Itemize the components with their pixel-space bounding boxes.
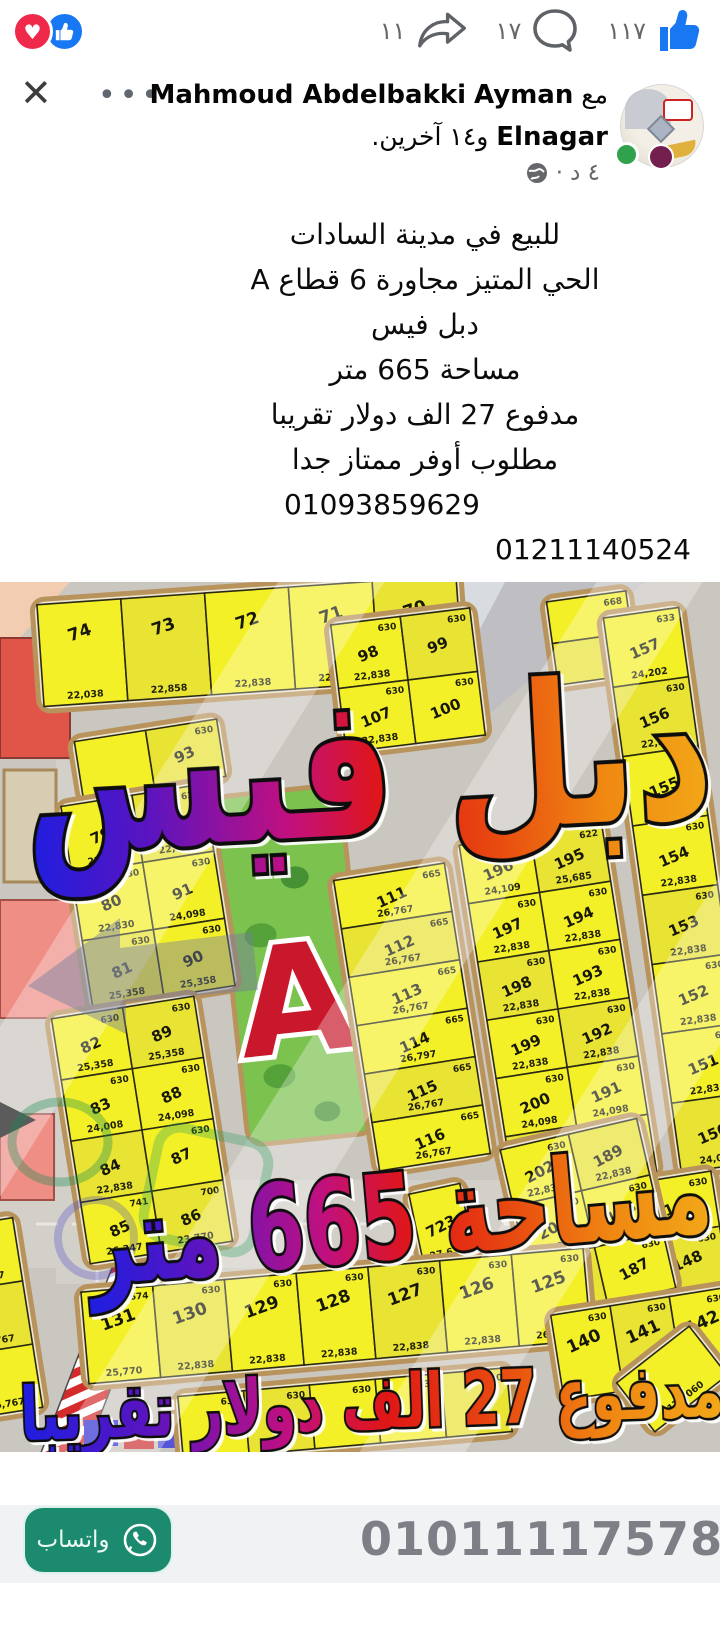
share-button[interactable]: ١١ [380, 9, 468, 53]
like-count: ١١٧ [607, 17, 646, 45]
love-reaction-icon: ♥ [12, 11, 53, 52]
author-primary-link[interactable]: Mahmoud Abdelbakki [149, 80, 466, 110]
post-line: دبل فيس [210, 302, 640, 347]
avatar-badge [648, 144, 674, 170]
whatsapp-button[interactable]: واتساب [25, 1508, 171, 1572]
globe-privacy-icon [525, 161, 549, 185]
contact-phone-number[interactable]: 01011117578 [360, 1512, 680, 1566]
comment-icon [531, 8, 579, 54]
comment-count: ١٧ [496, 17, 522, 45]
like-button[interactable]: ١١٧ [607, 7, 706, 55]
with-prefix: مع [581, 80, 608, 109]
whatsapp-icon [120, 1520, 160, 1560]
post-byline: مع Mahmoud Abdelbakki Ayman Elnagar و١٤ … [148, 74, 608, 158]
comment-button[interactable]: ١٧ [496, 8, 580, 54]
online-status-dot [614, 142, 639, 167]
share-icon [416, 9, 468, 53]
others-suffix[interactable]: و١٤ آخرين. [371, 122, 488, 151]
post-phone-2: 01211140524 [378, 527, 720, 572]
facebook-post-viewer: ♥ ١١ ١٧ ١١٧ [0, 0, 720, 1640]
post-text: للبيع في مدينة السادات الحي المتيز مجاور… [0, 212, 720, 572]
post-line: مطلوب أوفر ممتاز جدا [210, 437, 640, 482]
svg-text:630: 630 [706, 1293, 720, 1306]
map-title-text: دبل فيس [17, 635, 718, 900]
post-line: مدفوع 27 الف دولار تقريبا [210, 392, 640, 437]
avatar-art [663, 99, 693, 121]
close-button[interactable]: ✕ [20, 74, 52, 112]
post-line: الحي المتيز مجاورة 6 قطاع A [210, 257, 640, 302]
timestamp: ٤ د [570, 160, 600, 186]
whatsapp-label: واتساب [36, 1527, 109, 1553]
engagement-counts: ١١ ١٧ ١١٧ [364, 0, 706, 62]
listing-map-image[interactable]: A 7422,0387322,8587222,8387122,8387022,8… [0, 582, 720, 1452]
post-line: مساحة 665 متر [210, 347, 640, 392]
post-line: للبيع في مدينة السادات [210, 212, 640, 257]
like-thumb-icon [656, 7, 706, 55]
timestamp-row: ٤ د · [525, 160, 600, 186]
thumb-glyph [54, 21, 76, 43]
reactions-bar: ♥ ١١ ١٧ ١١٧ [0, 0, 720, 62]
share-count: ١١ [380, 17, 406, 45]
post-phone-1: 01093859629 [167, 482, 597, 527]
dot-separator: · [556, 160, 563, 186]
